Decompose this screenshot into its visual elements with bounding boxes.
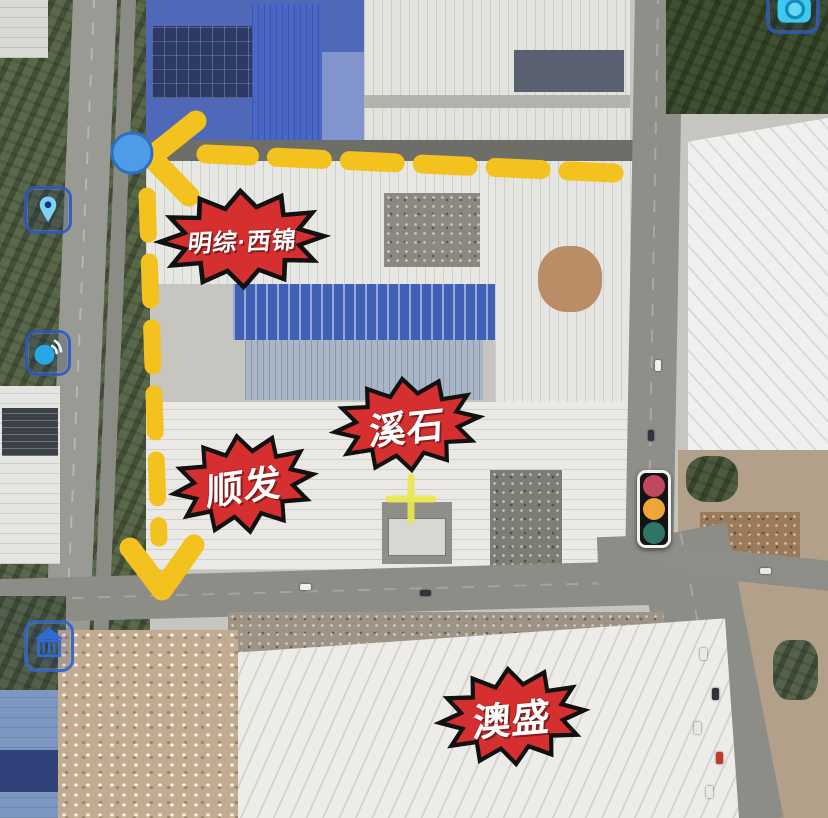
terrain-solar-roof bbox=[2, 408, 58, 456]
terrain-warehouse-left bbox=[0, 386, 60, 564]
terrain-glass-towers bbox=[0, 690, 58, 818]
location-pin-button[interactable] bbox=[24, 186, 72, 234]
burst-label-text: 明综·西锦 bbox=[186, 220, 299, 259]
terrain-factory-dark-roof bbox=[152, 26, 252, 98]
vehicle bbox=[655, 360, 661, 371]
vehicle bbox=[700, 648, 707, 660]
burst-label-mingzong-xijin: 明综·西锦 bbox=[154, 185, 329, 293]
terrain-gray-band bbox=[364, 95, 630, 108]
vehicle bbox=[760, 568, 771, 574]
terrain-small-roof bbox=[388, 518, 446, 556]
vehicle bbox=[300, 584, 311, 590]
traffic-light-green bbox=[643, 522, 665, 544]
terrain-factory-bright-roof bbox=[252, 4, 322, 142]
station-button[interactable] bbox=[24, 620, 74, 672]
terrain-trees bbox=[686, 456, 738, 502]
terrain-blue-factory bbox=[146, 0, 364, 146]
terrain-building bbox=[0, 0, 48, 58]
satellite-map-canvas[interactable]: 明综·西锦 溪石 顺发 澳盛 bbox=[0, 0, 828, 818]
burst-label-aosheng: 澳盛 bbox=[432, 660, 592, 774]
vehicle bbox=[648, 430, 654, 441]
terrain-road-lane-marks bbox=[0, 581, 656, 601]
burst-label-text: 澳盛 bbox=[472, 685, 553, 747]
terrain-factory-pale-roof bbox=[322, 52, 364, 144]
terrain-warehouse-right bbox=[688, 118, 828, 456]
terrain-blue-striped-building bbox=[233, 284, 495, 340]
burst-label-shunfa: 顺发 bbox=[164, 423, 324, 544]
terrain-warehouse-top bbox=[364, 0, 630, 141]
terrain-dirt-patch bbox=[538, 246, 602, 312]
traffic-light-amber bbox=[643, 498, 665, 520]
map-pin-icon bbox=[27, 189, 69, 231]
burst-label-text: 溪石 bbox=[368, 393, 445, 455]
terrain-tower-dark bbox=[0, 750, 58, 792]
burst-label-xishi: 溪石 bbox=[326, 368, 487, 480]
traffic-light-red bbox=[643, 475, 665, 497]
burst-label-text: 顺发 bbox=[206, 451, 281, 516]
voice-broadcast-button[interactable] bbox=[25, 330, 71, 376]
terrain-dirt-bottom-left bbox=[58, 630, 238, 818]
vehicle bbox=[420, 590, 431, 596]
traffic-light-marker bbox=[637, 470, 671, 548]
station-building-icon bbox=[27, 623, 71, 669]
vehicle bbox=[716, 752, 723, 764]
terrain-dark-roof bbox=[514, 50, 624, 92]
vehicle bbox=[694, 722, 701, 734]
terrain-road-top bbox=[146, 140, 636, 161]
terrain-clutter-yard bbox=[490, 470, 562, 566]
camera-button[interactable] bbox=[766, 0, 820, 34]
camera-icon bbox=[772, 0, 818, 31]
vehicle bbox=[712, 688, 719, 700]
terrain-trees bbox=[773, 640, 818, 700]
voice-broadcast-icon bbox=[28, 333, 68, 373]
terrain-clutter-roof bbox=[384, 193, 480, 267]
vehicle bbox=[706, 786, 713, 798]
